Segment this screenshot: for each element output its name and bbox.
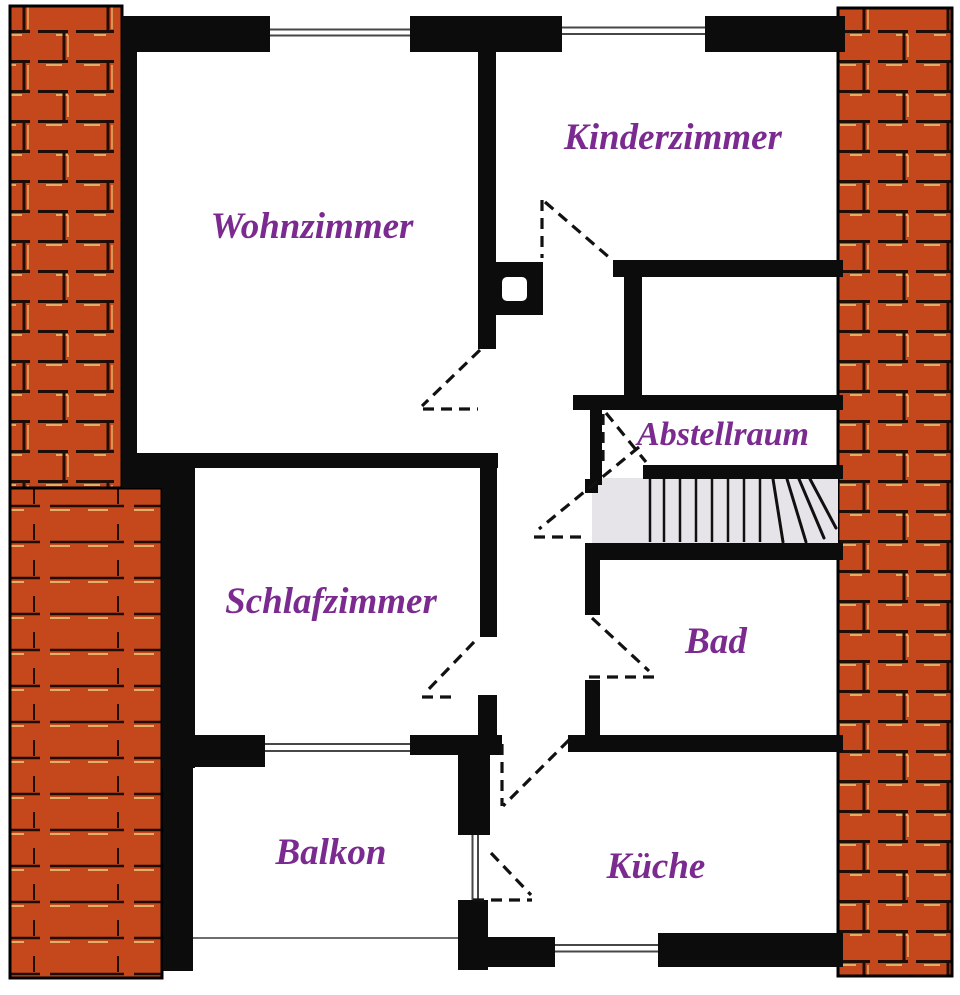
brick-pier-right bbox=[838, 8, 952, 976]
door-schlafzimmer bbox=[422, 642, 474, 697]
door-kueche bbox=[502, 740, 569, 806]
room-label-balkon: Balkon bbox=[274, 832, 386, 873]
window-kueche bbox=[555, 945, 658, 952]
floor-plan-drawing: Wohnzimmer Kinderzimmer Abstellraum Schl… bbox=[0, 0, 960, 995]
room-label-kueche: Küche bbox=[606, 846, 706, 887]
room-label-bad: Bad bbox=[684, 621, 747, 662]
window-schlafzimmer-balkon bbox=[265, 744, 410, 751]
door-balkon bbox=[473, 853, 532, 900]
floor-plan: Wohnzimmer Kinderzimmer Abstellraum Schl… bbox=[0, 0, 960, 995]
window-wohnzimmer bbox=[270, 30, 410, 36]
window-kinderzimmer bbox=[562, 28, 705, 35]
room-label-wohnzimmer: Wohnzimmer bbox=[211, 206, 414, 247]
door-bad bbox=[589, 618, 656, 677]
chimney-shaft bbox=[502, 277, 527, 301]
room-label-schlafzimmer: Schlafzimmer bbox=[225, 581, 437, 622]
brick-pier-left-upper bbox=[10, 6, 122, 488]
door-wohnzimmer bbox=[422, 350, 480, 409]
brick-pier-left-lower bbox=[10, 488, 162, 978]
room-label-abstellraum: Abstellraum bbox=[635, 416, 809, 453]
door-kinderzimmer bbox=[542, 200, 611, 259]
staircase bbox=[592, 478, 838, 543]
window-balkon-kueche bbox=[473, 835, 479, 900]
room-label-kinderzimmer: Kinderzimmer bbox=[563, 117, 783, 158]
